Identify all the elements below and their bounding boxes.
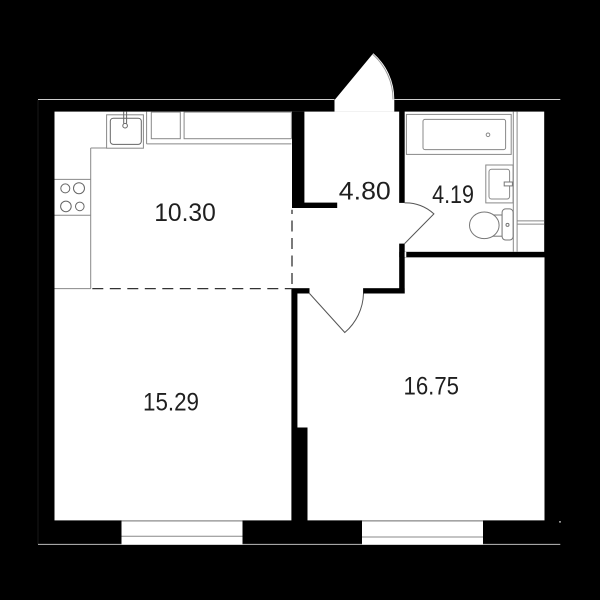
svg-text:15.29: 15.29 [143, 389, 199, 417]
svg-text:16.75: 16.75 [404, 372, 460, 400]
svg-text:4.80: 4.80 [339, 177, 391, 205]
svg-text:10.30: 10.30 [154, 199, 216, 227]
svg-text:4.19: 4.19 [432, 181, 474, 209]
